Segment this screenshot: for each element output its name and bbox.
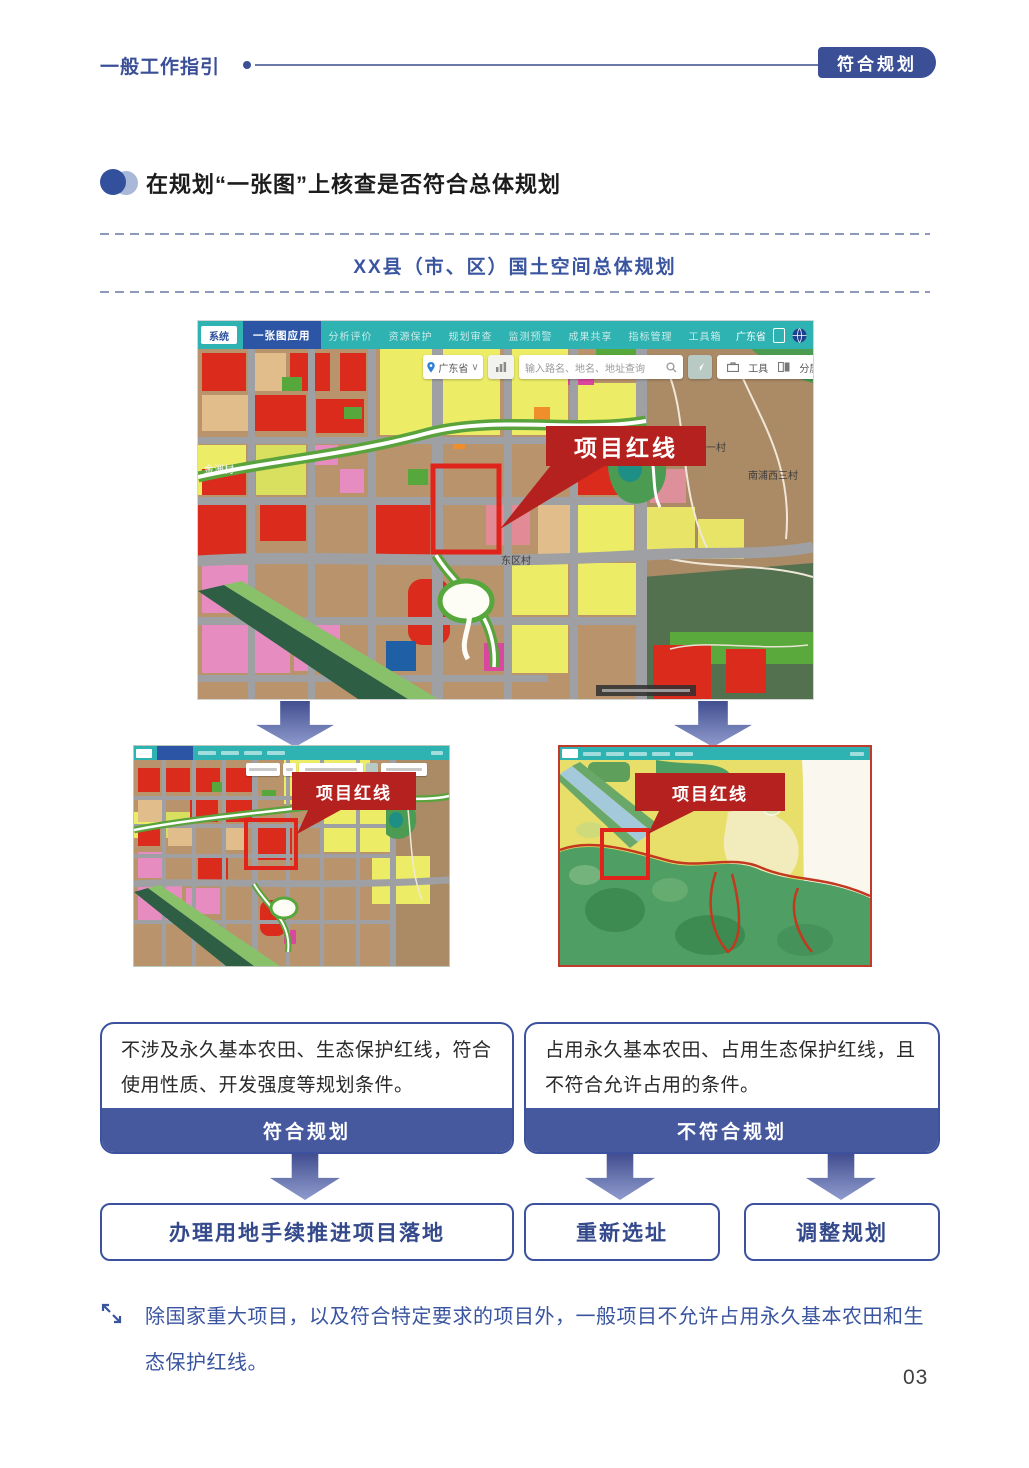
search-input[interactable]: 输入路名、地名、地址查询 [519,355,683,379]
split-screen-icon [778,362,790,372]
map-label-center-village: 东区村 [501,554,531,567]
arrow-adjust [806,1154,876,1200]
decision-box-compliant: 不涉及永久基本农田、生态保护红线，符合使用性质、开发强度等规划条件。 符合规划 [100,1022,514,1154]
map-toolbar: 系统 一张图应用 分析评价 资源保护 规划审查 监测预警 成果共享 指标管理 工… [198,321,813,349]
map-search-row: 广东省 ∨ 输入路名、地名、地址查询 [423,355,814,379]
arrow-down-left [256,701,334,747]
map-label-west-village: 金洲村 [204,463,234,476]
header-section-label: 一般工作指引 [100,52,220,79]
noncompliant-banner: 不符合规划 [526,1108,938,1152]
search-icon [666,362,677,373]
section-title: 在规划“一张图”上核查是否符合总体规划 [146,167,561,199]
compliant-condition-text: 不涉及永久基本农田、生态保护红线，符合使用性质、开发强度等规划条件。 [102,1024,512,1108]
submap-landuse: 项目红线 [133,745,450,967]
decision-box-noncompliant: 占用永久基本农田、占用生态保护红线，且不符合允许占用的条件。 不符合规划 [524,1022,940,1154]
notice-icon[interactable] [773,328,785,343]
submap-ecology: 项目红线 [558,745,872,967]
app-logo: 系统 [201,326,237,344]
tab-indicators[interactable]: 指标管理 [629,328,673,343]
region-dropdown[interactable]: 广东省 ∨ [423,355,483,379]
map-tools-group: 工具 分屏 [717,355,814,379]
main-map-screenshot: 金洲村 东区村 南浦西一村 南浦西三村 系统 一张图应用 分析评价 资源保护 规… [197,320,814,700]
tab-analysis[interactable]: 分析评价 [329,328,373,343]
tab-toolbox[interactable]: 工具箱 [689,328,722,343]
tab-one-map-app[interactable]: 一张图应用 [243,321,321,349]
action-proceed-box: 办理用地手续推进项目落地 [100,1203,514,1261]
compliant-banner: 符合规划 [102,1108,512,1152]
chevron-down-icon: ∨ [471,362,478,373]
guide-page: 一般工作指引 符合规划 在规划“一张图”上核查是否符合总体规划 XX县（市、区）… [0,0,1029,1468]
navigate-arrow-icon [695,362,705,372]
map-label-right-village-2: 南浦西三村 [748,469,798,482]
dashed-divider-bottom [100,291,930,293]
main-map-canvas[interactable]: 金洲村 东区村 南浦西一村 南浦西三村 [198,349,813,699]
tab-monitor[interactable]: 监测预警 [509,328,553,343]
header-badge: 符合规划 [818,47,936,78]
arrow-relocate [585,1154,655,1200]
heading-bullet-icon [100,169,142,196]
locate-button[interactable] [688,355,712,379]
dashed-divider-top [100,233,930,235]
arrow-down-right [674,701,752,747]
redline-callout: 项目红线 [546,426,706,466]
tab-resource[interactable]: 资源保护 [389,328,433,343]
plan-box-title: XX县（市、区）国土空间总体规划 [100,252,930,279]
arrow-compliant [270,1154,340,1200]
header-rule [255,64,820,66]
tab-results[interactable]: 成果共享 [569,328,613,343]
note-arrows-icon [100,1302,124,1326]
split-button[interactable]: 分屏 [799,360,814,375]
toolbox-icon [727,362,739,372]
action-adjust-box: 调整规划 [744,1203,940,1261]
layers-button[interactable] [488,355,514,379]
location-pin-icon [427,362,435,373]
redline-callout: 项目红线 [635,773,785,811]
redline-callout: 项目红线 [292,772,416,810]
submap-toolbar [560,747,870,760]
noncompliant-condition-text: 占用永久基本农田、占用生态保护红线，且不符合允许占用的条件。 [526,1024,938,1108]
tab-review[interactable]: 规划审查 [449,328,493,343]
toolbar-region-label[interactable]: 广东省 [736,328,766,343]
tools-button[interactable]: 工具 [748,360,768,375]
page-number: 03 [903,1366,928,1390]
note-text: 除国家重大项目，以及符合特定要求的项目外，一般项目不允许占用永久基本农田和生态保… [145,1294,935,1386]
chart-icon [495,361,507,373]
header-dot [243,61,251,69]
submap-toolbar [134,746,449,760]
action-relocate-box: 重新选址 [524,1203,720,1261]
globe-icon[interactable] [792,328,807,343]
